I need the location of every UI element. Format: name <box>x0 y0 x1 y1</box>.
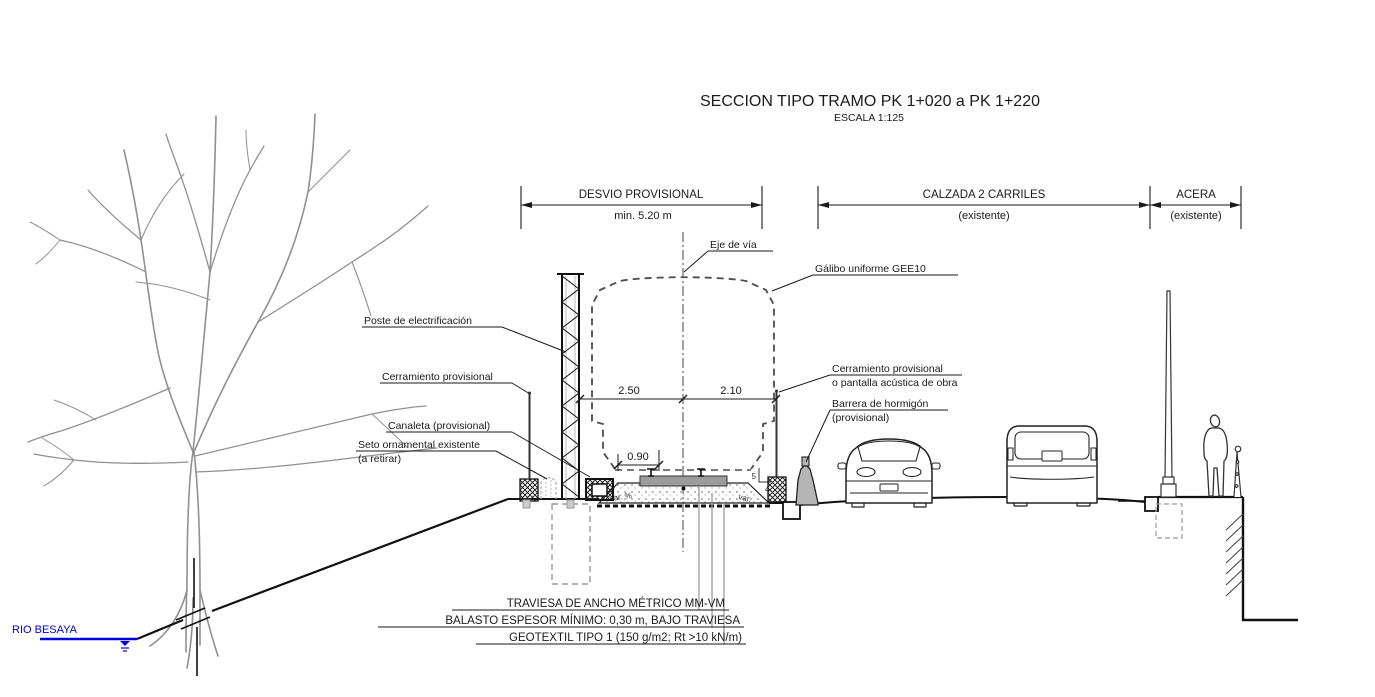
concrete-barrier <box>796 457 818 505</box>
band-desvio-sub: min. 5.20 m <box>614 210 671 222</box>
dim-gauge-line <box>576 395 780 403</box>
band-desvio-label: DESVIO PROVISIONAL <box>579 189 704 201</box>
pole-foundation-dashed <box>1156 504 1182 538</box>
mast-foot-left <box>523 500 530 508</box>
track-axis-point <box>682 487 686 491</box>
gabion-right <box>768 477 786 502</box>
label-hedge-line2: (a retirar) <box>358 453 401 465</box>
gabion-left <box>520 479 538 501</box>
label-track-axis: Eje de vía <box>710 239 757 251</box>
label-electrification-post: Poste de electrificación <box>364 315 472 327</box>
canaleta-box <box>586 479 613 500</box>
bollard <box>1234 446 1241 497</box>
dim-left-value: 2.50 <box>618 385 639 397</box>
tree <box>28 114 437 668</box>
label-barrier-line1: Barrera de hormigón <box>832 398 928 410</box>
label-fence-left: Cerramiento provisional <box>382 371 493 383</box>
pedestrian-figure <box>1204 414 1228 496</box>
car-front-view <box>838 439 940 507</box>
note-sleeper: TRAVIESA DE ANCHO MÉTRICO MM-VM <box>507 597 725 610</box>
slope-ratio-v: 5 <box>752 472 757 481</box>
dim-sleeper-value: 0.90 <box>627 451 648 463</box>
mast-foundation-dashed <box>552 504 590 584</box>
band-acera-sub: (existente) <box>1170 210 1221 222</box>
fence-post-left <box>528 392 531 480</box>
van-rear-view <box>1007 426 1097 506</box>
drawing-title: SECCION TIPO TRAMO PK 1+020 a PK 1+220 <box>700 93 1040 110</box>
dim-right-value: 2.10 <box>720 385 741 397</box>
band-acera-label: ACERA <box>1176 189 1216 201</box>
mast-foot-right <box>567 500 574 508</box>
band-calzada-sub: (existente) <box>958 210 1009 222</box>
label-barrier-line2: (provisional) <box>832 412 889 424</box>
band-calzada-label: CALZADA 2 CARRILES <box>923 189 1046 201</box>
hedge-seto <box>541 478 556 500</box>
label-fence-right-line2: o pantalla acústica de obra <box>832 377 958 389</box>
label-fence-right-line1: Cerramiento provisional <box>832 363 943 375</box>
drawing-canvas: SECCION TIPO TRAMO PK 1+020 a PK 1+220 E… <box>0 0 1375 697</box>
label-cable-trough: Canaleta (provisional) <box>388 420 490 432</box>
sleeper <box>640 476 727 486</box>
wall-hatch <box>1226 514 1243 596</box>
label-gauge: Gálibo uniforme GEE10 <box>815 263 926 275</box>
drawing-scale: ESCALA 1:125 <box>834 112 904 124</box>
note-ballast: BALASTO ESPESOR MÍNIMO: 0,30 m, BAJO TRA… <box>445 614 740 627</box>
river <box>40 639 137 651</box>
fence-post-right <box>775 390 778 478</box>
note-geotextile: GEOTEXTIL TIPO 1 (150 g/m2; Rt >10 kN/m) <box>509 632 742 644</box>
section-drawing: SECCION TIPO TRAMO PK 1+020 a PK 1+220 E… <box>0 0 1375 697</box>
label-hedge-line1: Seto ornamental existente <box>358 439 480 451</box>
river-label: RIO BESAYA <box>12 624 78 636</box>
street-pole <box>1161 291 1176 497</box>
